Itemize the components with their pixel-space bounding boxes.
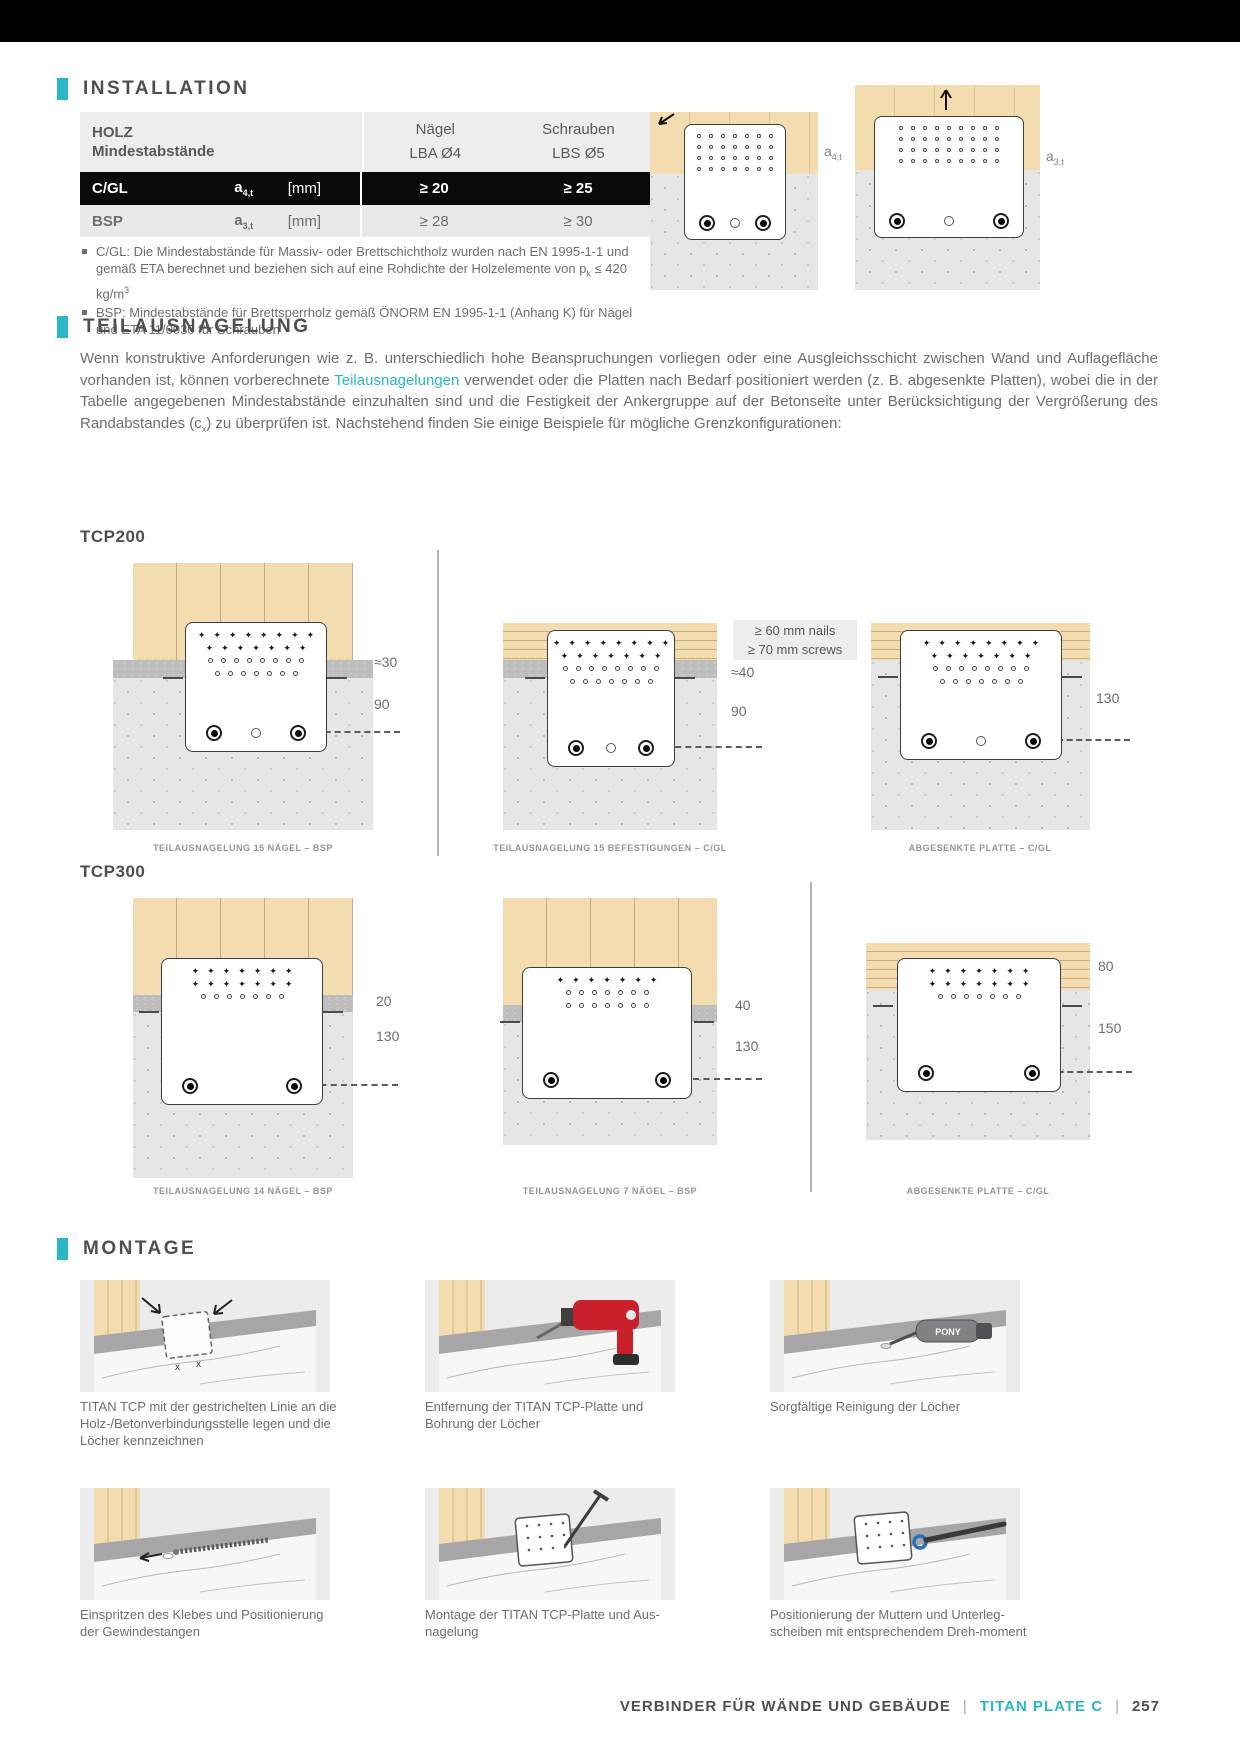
footer-product: TITAN PLATE C — [980, 1698, 1103, 1715]
plate-icon — [515, 1514, 573, 1567]
montage-step-1-caption: TITAN TCP mit der gestrichelten Linie an… — [80, 1398, 340, 1449]
tcp-plate: ✦✦✦✦✦✦✦✦✦✦✦✦✦✦✦ — [900, 630, 1062, 760]
tcp300-label: TCP300 — [80, 862, 145, 882]
montage-step-6-illustration — [770, 1488, 1020, 1600]
section-accent-block — [57, 78, 68, 100]
montage-step-2-caption: Entfernung der TITAN TCP-Platte und Bohr… — [425, 1398, 685, 1432]
table-row-bsp: BSP a3,t [mm] ≥ 28 ≥ 30 — [80, 205, 650, 237]
diagram-caption: TEILAUSNAGELUNG 14 NÄGEL – BSP — [93, 1186, 393, 1196]
section-accent-block — [57, 1238, 68, 1260]
section-accent-block — [57, 316, 68, 338]
measurement: ≈30 — [374, 654, 397, 670]
footer-section: VERBINDER FÜR WÄNDE UND GEBÄUDE — [620, 1698, 951, 1715]
arrow-up-icon — [938, 84, 954, 112]
montage-step-4-caption: Einspritzen des Klebes und Positionierun… — [80, 1606, 340, 1640]
montage-step-2-illustration — [425, 1280, 675, 1392]
measurement: ≈40 — [731, 664, 754, 680]
montage-step-5-caption: Montage der TITAN TCP-Platte und Aus-nag… — [425, 1606, 685, 1640]
tcp-plate — [874, 116, 1024, 238]
diagram-caption: TEILAUSNAGELUNG 15 NÄGEL – BSP — [93, 843, 393, 853]
montage-step-1-illustration: x x — [80, 1280, 330, 1392]
tcp-plate — [684, 124, 786, 240]
measurement: 80 — [1098, 958, 1114, 974]
bullet-icon — [82, 249, 87, 254]
hole-mark: x — [175, 1362, 180, 1373]
measurement: 130 — [1096, 690, 1119, 706]
tcp-plate: ✦✦✦✦✦✦✦✦✦✦✦✦✦✦ — [161, 958, 323, 1105]
footnote-cgl: C/GL: Die Mindestabstände für Massiv- od… — [80, 244, 636, 302]
divider — [810, 882, 812, 1192]
measurement: 90 — [374, 696, 390, 712]
intro-paragraph: Wenn konstruktive Anforderungen wie z. B… — [80, 348, 1158, 440]
table-header-row: HOLZ Mindestabstände Nägel LBA Ø4 Schrau… — [80, 112, 650, 172]
measurement: 130 — [735, 1038, 758, 1054]
tcp200-label: TCP200 — [80, 527, 145, 547]
measurement: 20 — [376, 993, 392, 1009]
diagram-caption: ABGESENKTE PLATTE – C/GL — [830, 843, 1130, 853]
dimension-label-a3t: a3,t — [1046, 148, 1064, 167]
installation-header: INSTALLATION — [57, 78, 250, 100]
table-header-nails: Nägel LBA Ø4 — [362, 112, 507, 172]
diagram-caption: TEILAUSNAGELUNG 7 NÄGEL – BSP — [460, 1186, 760, 1196]
diagram-caption: ABGESENKTE PLATTE – C/GL — [828, 1186, 1128, 1196]
montage-step-5-illustration — [425, 1488, 675, 1600]
montage-step-4-illustration — [80, 1488, 330, 1600]
section-title-montage: MONTAGE — [83, 1238, 196, 1260]
hole-mark: x — [196, 1359, 201, 1370]
tcp-plate: ✦✦✦✦✦✦✦✦✦✦✦✦✦✦✦ — [185, 622, 327, 752]
footer-separator: | — [1115, 1698, 1120, 1715]
diagram-caption: TEILAUSNAGELUNG 15 BEFESTIGUNGEN – C/GL — [460, 843, 760, 853]
montage-header: MONTAGE — [57, 1238, 196, 1260]
page-footer: VERBINDER FÜR WÄNDE UND GEBÄUDE | TITAN … — [620, 1698, 1160, 1716]
table-header-wood: HOLZ Mindestabstände — [80, 123, 202, 161]
min-distance-table: HOLZ Mindestabstände Nägel LBA Ø4 Schrau… — [80, 112, 650, 237]
section-title-teilausnagelung: TEILAUSNAGELUNG — [83, 316, 311, 338]
montage-step-6-caption: Positionierung der Muttern und Unterleg-… — [770, 1606, 1030, 1640]
montage-step-3-illustration: PONY — [770, 1280, 1020, 1392]
measurement: 90 — [731, 703, 747, 719]
dashed-plate-outline — [162, 1311, 213, 1358]
fastener-note-box: ≥ 60 mm nails ≥ 70 mm screws — [733, 620, 857, 660]
footer-page-number: 257 — [1132, 1698, 1160, 1715]
dimension-label-a4t: a4,t — [824, 143, 842, 162]
measurement: 40 — [735, 997, 751, 1013]
tcp-plate: ✦✦✦✦✦✦✦✦✦✦✦✦✦✦ — [897, 958, 1061, 1092]
footer-separator: | — [963, 1698, 968, 1715]
tcp-plate: ✦✦✦✦✦✦✦✦✦✦✦✦✦✦✦ — [547, 630, 675, 767]
plate-icon — [854, 1512, 912, 1565]
divider — [437, 550, 439, 856]
table-row-cgl: C/GL a4,t [mm] ≥ 20 ≥ 25 — [80, 172, 650, 205]
measurement: 150 — [1098, 1020, 1121, 1036]
arrow-icon — [652, 110, 678, 130]
pony-label: PONY — [935, 1327, 961, 1337]
bullet-icon — [82, 310, 87, 315]
montage-step-3-caption: Sorgfältige Reinigung der Löcher — [770, 1398, 1030, 1415]
teilausnagelung-header: TEILAUSNAGELUNG — [57, 316, 311, 338]
catalog-page: INSTALLATION HOLZ Mindestabstände Nägel … — [0, 0, 1240, 1754]
table-header-screws: Schrauben LBS Ø5 — [507, 112, 650, 172]
tcp-plate: ✦✦✦✦✦✦✦ — [522, 967, 692, 1099]
section-title-installation: INSTALLATION — [83, 78, 250, 100]
top-bar — [0, 0, 1240, 42]
measurement: 130 — [376, 1028, 399, 1044]
